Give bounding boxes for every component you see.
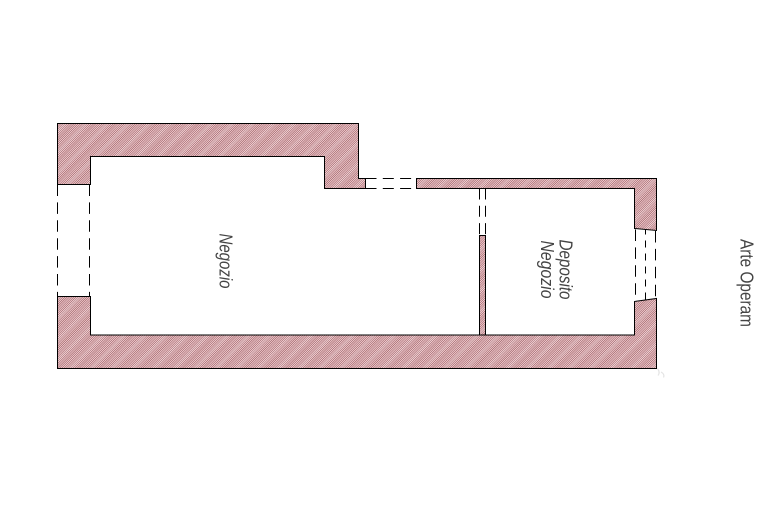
svg-text:DepositoNegozio: DepositoNegozio (537, 240, 577, 300)
svg-text:Negozio: Negozio (216, 234, 237, 289)
svg-text:Arte Operam: Arte Operam (737, 239, 758, 327)
